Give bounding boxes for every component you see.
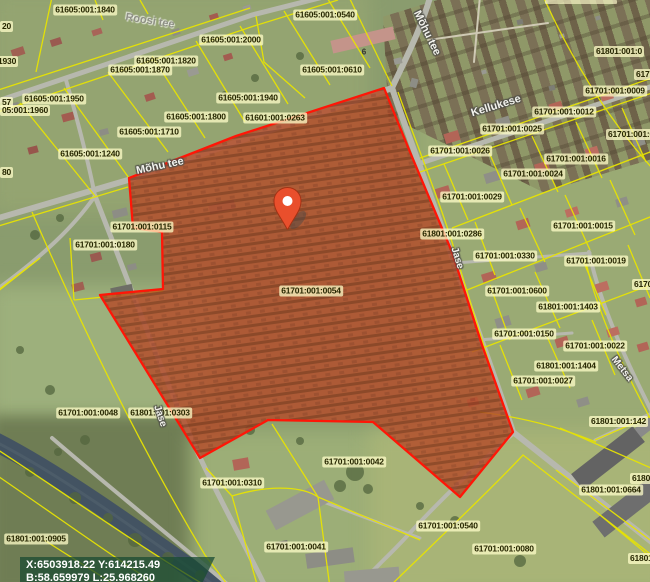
parcel-label[interactable]: 61701:001:0012 <box>532 107 596 118</box>
parcel-label[interactable]: 61701:001:0015 <box>551 221 615 232</box>
parcel-label[interactable]: 61605:001:1950 <box>22 94 86 105</box>
parcel-label[interactable]: 6180 <box>630 473 650 484</box>
parcel-label[interactable]: 61701:001:0540 <box>416 521 480 532</box>
parcel-label[interactable]: 61701:001:0330 <box>473 251 537 262</box>
street-name-label: Roosi tee <box>125 11 176 31</box>
coordinate-status-overlay: X:6503918.22 Y:614215.49 B:58.659979 L:2… <box>20 557 215 582</box>
parcel-label[interactable]: 61801:001:142 <box>589 416 648 427</box>
house-number-label: 6 <box>362 48 366 57</box>
parcel-label[interactable]: 61801:001:0286 <box>420 229 484 240</box>
coordinate-bl: B:58.659979 L:25.968260 <box>26 572 209 582</box>
parcel-label[interactable]: 61701:001:0026 <box>428 146 492 157</box>
street-name-label: Jase <box>448 246 465 270</box>
parcel-label[interactable]: 61701:001:0024 <box>501 169 565 180</box>
parcel-label[interactable]: 20 <box>0 21 13 32</box>
parcel-label[interactable]: 61701:001:0150 <box>492 329 556 340</box>
parcel-label[interactable]: 61605:001:2000 <box>199 35 263 46</box>
parcel-label[interactable]: 61701:001:0080 <box>472 544 536 555</box>
parcel-label[interactable]: 61701:001:0180 <box>73 240 137 251</box>
parcel-label[interactable]: 61801 <box>628 553 650 564</box>
parcel-label[interactable]: 61801:001:0905 <box>4 534 68 545</box>
parcel-label[interactable]: 61801:001:1404 <box>534 361 598 372</box>
parcel-label[interactable]: 617 <box>634 69 650 80</box>
parcel-label[interactable]: 61701:001:0016 <box>544 154 608 165</box>
parcel-label[interactable]: 80 <box>0 167 13 178</box>
parcel-labels-layer: 61605:001:184061605:001:200061605:001:05… <box>0 0 650 582</box>
parcel-label[interactable]: 61605:001:1940 <box>216 93 280 104</box>
parcel-label[interactable]: 61701:001:0600 <box>485 286 549 297</box>
parcel-label[interactable]: 61701:001:0027 <box>511 376 575 387</box>
parcel-label[interactable]: 61701:001:0029 <box>440 192 504 203</box>
parcel-label[interactable]: 61701:001:0054 <box>279 286 343 297</box>
parcel-label[interactable]: 61801:001:1403 <box>536 302 600 313</box>
parcel-label[interactable]: 61605:001:1800 <box>164 112 228 123</box>
parcel-label[interactable]: 61605:001:1240 <box>58 149 122 160</box>
parcel-label[interactable]: 61701:001:0022 <box>563 341 627 352</box>
parcel-label[interactable]: 61801:001:0664 <box>579 485 643 496</box>
parcel-label[interactable]: 6170 <box>632 279 650 290</box>
coordinate-xy: X:6503918.22 Y:614215.49 <box>26 559 209 572</box>
parcel-label[interactable]: 61701:001:0310 <box>200 478 264 489</box>
parcel-label[interactable]: 61605:001:0610 <box>300 65 364 76</box>
map-canvas[interactable]: 61605:001:184061605:001:200061605:001:05… <box>0 0 650 582</box>
parcel-label[interactable]: 61605:001:0540 <box>293 10 357 21</box>
parcel-label[interactable]: 61701:001:0009 <box>583 86 647 97</box>
parcel-label[interactable]: 05:001:1960 <box>0 105 50 116</box>
parcel-label[interactable]: 61701:001:0041 <box>264 542 328 553</box>
parcel-label[interactable]: 61601:001:0263 <box>243 113 307 124</box>
street-name-label: Metsa <box>609 354 635 383</box>
street-name-label: Mõhu tee <box>135 155 185 177</box>
parcel-label[interactable]: 61801:001:0 <box>594 46 644 57</box>
parcel-label[interactable]: 61701:001:00 <box>606 129 650 140</box>
parcel-label[interactable]: 61701:001:0048 <box>56 408 120 419</box>
street-name-label: Mõhu tee <box>411 9 443 58</box>
street-name-label: Kellukese <box>470 93 523 119</box>
parcel-label[interactable]: 61701:001:0019 <box>564 256 628 267</box>
parcel-label[interactable]: 61605:001:1710 <box>117 127 181 138</box>
parcel-label[interactable]: 61605:001:1870 <box>108 65 172 76</box>
parcel-label[interactable]: 61701:001:0025 <box>480 124 544 135</box>
parcel-label[interactable]: 61701:001:0042 <box>322 457 386 468</box>
parcel-label[interactable]: 1930 <box>0 56 18 67</box>
parcel-label[interactable]: 61701:001:0115 <box>110 222 173 233</box>
parcel-label[interactable]: 61605:001:1840 <box>53 5 117 16</box>
